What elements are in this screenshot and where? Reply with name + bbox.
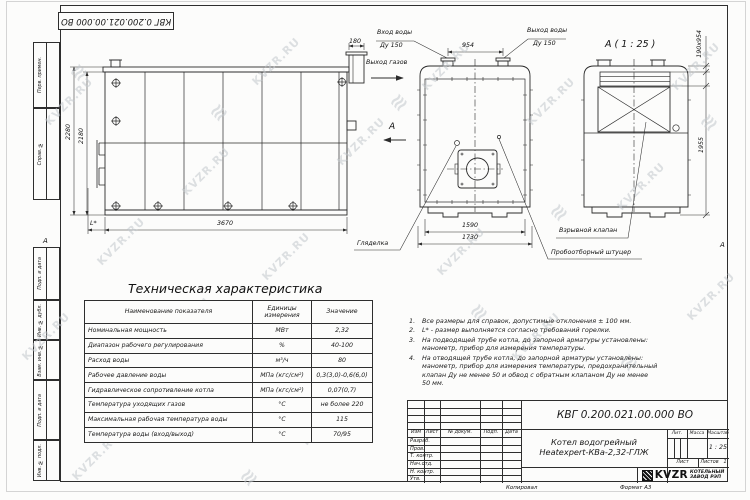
spec-cell: м³/ч <box>253 354 312 369</box>
sight-glass-label: Гляделка <box>357 241 388 247</box>
product-name-line2: Heatexpert-КВа-2,32-ГЛЖ <box>539 448 648 458</box>
copied-label: Копировал <box>506 486 537 492</box>
dim-l-star: L* <box>90 221 97 227</box>
spec-cell: МПа (кгс/см²) <box>253 368 312 383</box>
doc-number-stamp-text: КВГ 0.200.021.00.000 ВО <box>61 16 171 26</box>
row-tkontr: Т. контр. <box>410 453 440 460</box>
spec-cell: Температура воды (вход/выход) <box>85 428 253 443</box>
dim-180: 180 <box>349 39 361 45</box>
col-izm: Изм <box>408 429 424 437</box>
doc-number-stamp: КВГ 0.200.021.00.000 ВО <box>58 12 174 30</box>
drawing-sheet: KVZR.RU KVZR.RU KVZR.RU KVZR.RU KVZR.RU … <box>0 0 750 500</box>
spec-cell: 40-100 <box>312 339 372 354</box>
row-nkontr: Н. контр. <box>410 469 440 476</box>
explosion-valve-leader <box>556 122 646 238</box>
sight-glass-leader <box>354 146 456 250</box>
view-a-title: А ( 1 : 25 ) <box>605 40 655 50</box>
sampling-label: Пробоотборный штуцер <box>551 250 631 256</box>
side-view <box>97 52 367 215</box>
col-data: Дата <box>502 429 521 437</box>
spec-header-value: Значение <box>312 301 372 324</box>
inspection-hatch-markers <box>111 77 347 211</box>
spec-table: Наименование показателя Единицы измерени… <box>84 300 373 443</box>
spec-cell: 115 <box>312 413 372 428</box>
spec-header-name: Наименование показателя <box>85 301 253 324</box>
water-outlet-dn-label: Ду 150 <box>533 41 556 47</box>
dim-2180: 2180 <box>79 128 85 144</box>
note-text: На отводящей трубе котла, до запорной ар… <box>422 354 657 388</box>
col-podp: Подп. <box>480 429 502 437</box>
spec-header-units: Единицы измерения <box>253 301 312 324</box>
spec-cell: °С <box>253 398 312 413</box>
sheet-label: Лист <box>667 458 698 467</box>
note-text: На подводящей трубе котла, до запорной а… <box>422 336 648 353</box>
row-nachotd: Нач.отд. <box>410 461 440 468</box>
spec-cell: Гидравлическое сопротивление котла <box>85 383 253 398</box>
note-number: 3. <box>407 336 422 353</box>
spec-cell: МВт <box>253 324 312 339</box>
sheets-label: Листов <box>700 460 718 466</box>
spec-cell: Температура уходящих газов <box>85 398 253 413</box>
view-a-letter: А <box>389 123 395 132</box>
col-doc: № докум. <box>440 429 480 437</box>
spec-cell: Диапазон рабочего регулирования <box>85 339 253 354</box>
water-inlet-dn-label: Ду 150 <box>380 43 403 49</box>
scale-value: 1 : 25 <box>707 438 729 458</box>
note-number: 4. <box>407 354 422 388</box>
spec-cell: 70/95 <box>312 428 372 443</box>
technical-notes: 1. Все размеры для справок, допустимые о… <box>407 317 715 389</box>
spec-cell: °С <box>253 428 312 443</box>
spec-cell: 2,32 <box>312 324 372 339</box>
spec-table-title: Техническая характеристика <box>128 283 322 296</box>
sampling-fitting <box>497 135 500 138</box>
note-number: 2. <box>407 326 422 334</box>
note-item: 2. L* - размер выполняется согласно треб… <box>407 326 715 334</box>
spec-cell: не более 220 <box>312 398 372 413</box>
water-inlet-label: Вход воды <box>377 30 412 36</box>
spec-cell: МПа (кгс/см²) <box>253 383 312 398</box>
row-utv: Утв. <box>410 476 440 483</box>
dim-1730: 1730 <box>462 235 478 241</box>
org-name-line2: ЗАВОД РЭП <box>690 475 724 480</box>
title-block-doc-number: КВГ 0.200.021.00.000 ВО <box>521 401 729 429</box>
note-item: 1. Все размеры для справок, допустимые о… <box>407 317 715 325</box>
col-list: Лист <box>424 429 440 437</box>
spec-cell: 80 <box>312 354 372 369</box>
dimension-lines <box>70 36 710 259</box>
dim-1590: 1590 <box>462 223 478 229</box>
note-number: 1. <box>407 317 422 325</box>
mass-label: Масса <box>687 429 707 438</box>
lit-label: Лит. <box>667 429 687 438</box>
spec-cell: Рабочее давление воды <box>85 368 253 383</box>
row-prov: Пров. <box>410 446 440 453</box>
spec-cell: Расход воды <box>85 354 253 369</box>
note-item: 3. На подводящей трубе котла, до запорно… <box>407 336 715 353</box>
kvzr-logo-text: KVZR <box>655 469 688 481</box>
dim-2280: 2280 <box>66 124 72 140</box>
spec-cell: 0,3(3,0)-0,6(6,0) <box>312 368 372 383</box>
kvzr-logo-icon <box>642 470 653 481</box>
sight-glass <box>455 141 460 146</box>
zone-marker-right: А <box>720 242 725 249</box>
note-text: L* - размер выполняется согласно требова… <box>422 326 611 334</box>
spec-cell: Максимальная рабочая температура воды <box>85 413 253 428</box>
spec-cell: °С <box>253 413 312 428</box>
spec-cell: Номинальная мощность <box>85 324 253 339</box>
dim-954: 954 <box>462 43 474 49</box>
spec-cell: 0,07(0,7) <box>312 383 372 398</box>
sheets-value: 1 <box>723 460 726 466</box>
spec-cell: % <box>253 339 312 354</box>
row-razrab: Разраб. <box>410 438 440 445</box>
dim-190x954: 190х954 <box>697 30 703 58</box>
note-text: Все размеры для справок, допустимые откл… <box>422 317 631 325</box>
scale-label: Масштаб <box>707 429 729 438</box>
gas-outlet-label: Выход газов <box>366 60 407 66</box>
dim-3670: 3670 <box>217 221 233 227</box>
explosion-valve-label: Взрывной клапан <box>559 228 617 234</box>
note-item: 4. На отводящей трубе котла, до запорной… <box>407 354 715 388</box>
title-block: КВГ 0.200.021.00.000 ВО Изм Лист № докум… <box>407 400 728 482</box>
dim-1955: 1955 <box>699 137 705 153</box>
manufacturer-logo: KVZR КОТЕЛЬНЫЙ ЗАВОД РЭП <box>637 467 729 483</box>
water-outlet-label: Выход воды <box>527 28 567 34</box>
zone-marker-left: А <box>43 238 48 245</box>
format-label: Формат А3 <box>620 486 651 492</box>
